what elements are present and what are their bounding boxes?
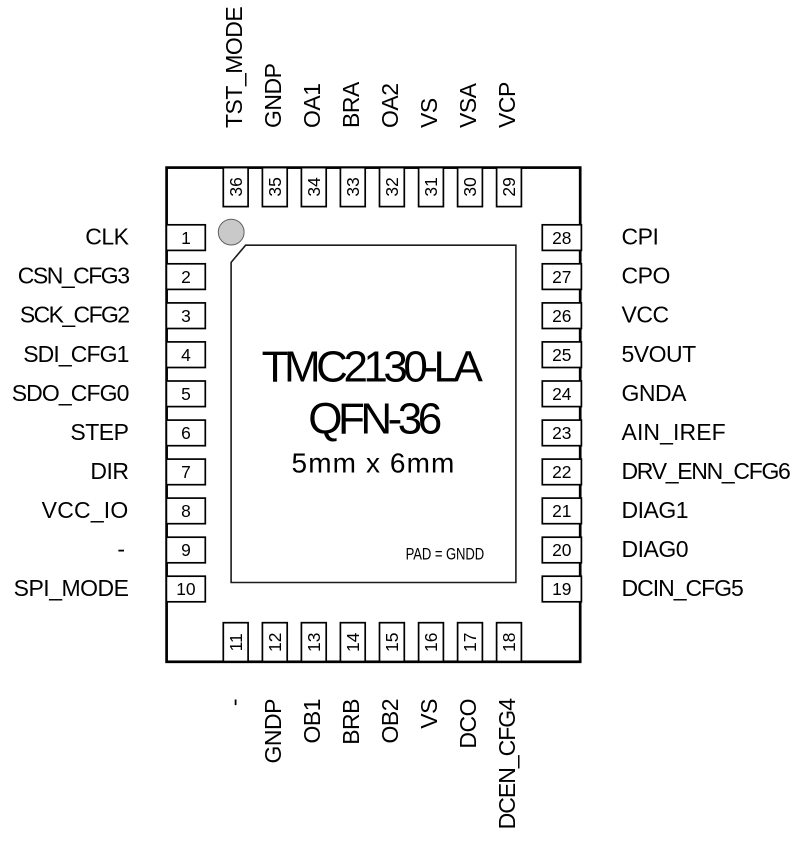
svg-text:DCEN_CFG4: DCEN_CFG4	[494, 698, 520, 830]
svg-text:GNDP: GNDP	[260, 63, 286, 128]
svg-text:1: 1	[181, 228, 191, 248]
svg-text:VS: VS	[416, 98, 442, 128]
svg-text:SDI_CFG1: SDI_CFG1	[23, 341, 128, 367]
svg-text:25: 25	[552, 345, 571, 365]
svg-text:12: 12	[265, 633, 285, 652]
svg-text:9: 9	[181, 540, 191, 560]
svg-text:TST_MODE: TST_MODE	[221, 7, 247, 128]
svg-text:VS: VS	[416, 699, 442, 729]
svg-text:DIAG1: DIAG1	[622, 497, 689, 523]
svg-text:CPO: CPO	[622, 263, 670, 289]
svg-text:CLK: CLK	[85, 224, 129, 250]
svg-text:33: 33	[343, 177, 363, 196]
svg-text:TMC2130-LA: TMC2130-LA	[262, 342, 484, 391]
svg-text:OA2: OA2	[377, 83, 403, 128]
svg-text:7: 7	[181, 462, 191, 482]
svg-text:2: 2	[181, 267, 191, 287]
svg-text:GNDP: GNDP	[260, 699, 286, 764]
svg-text:23: 23	[552, 423, 571, 443]
svg-text:8: 8	[181, 501, 191, 521]
svg-text:BRA: BRA	[338, 81, 364, 128]
svg-text:DIAG0: DIAG0	[622, 536, 689, 562]
svg-text:CSN_CFG3: CSN_CFG3	[18, 263, 129, 289]
svg-text:15: 15	[382, 633, 402, 652]
svg-text:6: 6	[181, 423, 191, 443]
svg-text:13: 13	[304, 633, 324, 652]
svg-text:3: 3	[181, 306, 191, 326]
svg-text:VCC: VCC	[622, 302, 669, 328]
svg-text:4: 4	[181, 345, 191, 365]
svg-text:SDO_CFG0: SDO_CFG0	[12, 380, 129, 406]
svg-text:OA1: OA1	[299, 83, 325, 128]
svg-text:29: 29	[499, 177, 519, 196]
svg-text:32: 32	[382, 177, 402, 196]
svg-text:30: 30	[460, 177, 480, 196]
svg-text:CPI: CPI	[622, 224, 659, 250]
svg-text:14: 14	[343, 632, 363, 652]
svg-text:SPI_MODE: SPI_MODE	[14, 575, 129, 601]
svg-text:31: 31	[421, 177, 441, 196]
svg-text:20: 20	[552, 540, 571, 560]
svg-text:PAD = GNDD: PAD = GNDD	[406, 545, 485, 564]
svg-text:17: 17	[460, 633, 480, 652]
svg-text:-: -	[117, 536, 124, 562]
svg-text:QFN-36: QFN-36	[308, 394, 441, 443]
svg-text:11: 11	[226, 633, 246, 651]
svg-text:24: 24	[552, 384, 572, 404]
svg-text:VSA: VSA	[455, 82, 481, 128]
svg-text:GNDA: GNDA	[622, 380, 688, 406]
svg-text:VCC_IO: VCC_IO	[42, 497, 129, 523]
svg-text:16: 16	[421, 633, 441, 652]
svg-text:DCIN_CFG5: DCIN_CFG5	[622, 575, 744, 601]
svg-text:5VOUT: 5VOUT	[622, 341, 697, 367]
svg-text:AIN_IREF: AIN_IREF	[622, 419, 726, 445]
svg-text:27: 27	[552, 267, 571, 287]
svg-text:5mm x 6mm: 5mm x 6mm	[292, 447, 456, 478]
svg-text:-: -	[221, 699, 247, 706]
svg-text:BRB: BRB	[338, 699, 364, 745]
svg-text:VCP: VCP	[494, 82, 520, 128]
svg-text:10: 10	[176, 579, 195, 599]
svg-text:DIR: DIR	[90, 458, 128, 484]
svg-text:22: 22	[552, 462, 571, 482]
svg-text:OB2: OB2	[377, 699, 403, 744]
svg-text:19: 19	[552, 579, 571, 599]
svg-text:35: 35	[265, 177, 285, 196]
svg-text:STEP: STEP	[70, 419, 128, 445]
svg-text:5: 5	[181, 384, 191, 404]
svg-text:21: 21	[552, 501, 571, 521]
svg-text:18: 18	[499, 633, 519, 652]
svg-text:26: 26	[552, 306, 571, 326]
svg-text:DCO: DCO	[455, 699, 481, 749]
svg-text:SCK_CFG2: SCK_CFG2	[20, 302, 129, 328]
svg-text:OB1: OB1	[299, 699, 325, 744]
svg-text:36: 36	[226, 177, 246, 196]
svg-text:DRV_ENN_CFG6: DRV_ENN_CFG6	[622, 458, 791, 484]
svg-text:34: 34	[304, 177, 324, 197]
svg-text:28: 28	[552, 228, 571, 248]
